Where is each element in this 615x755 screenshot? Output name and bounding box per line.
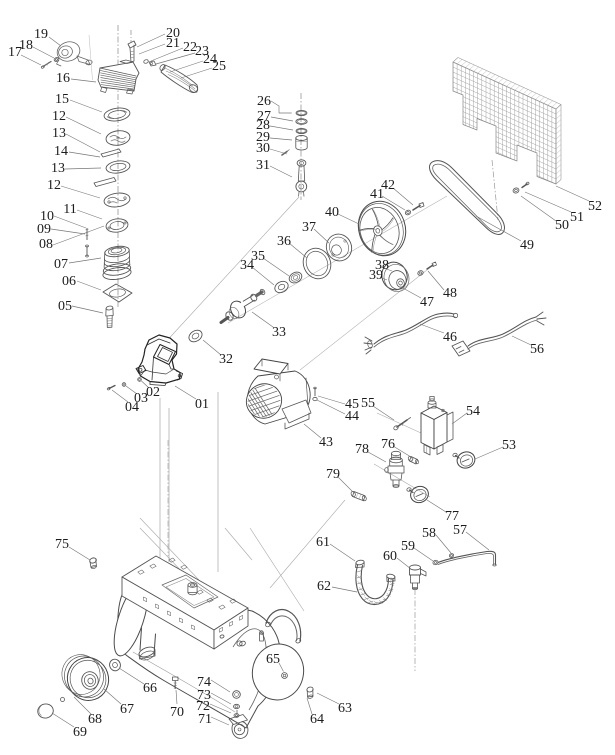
svg-text:78: 78 xyxy=(355,442,369,457)
svg-text:05: 05 xyxy=(58,299,72,314)
svg-text:19: 19 xyxy=(34,27,48,42)
svg-text:67: 67 xyxy=(120,702,134,717)
svg-text:40: 40 xyxy=(325,205,339,220)
svg-text:10: 10 xyxy=(40,209,54,224)
svg-text:13: 13 xyxy=(51,161,65,176)
svg-text:33: 33 xyxy=(272,325,286,340)
svg-text:64: 64 xyxy=(310,712,324,727)
svg-text:25: 25 xyxy=(212,59,226,74)
svg-text:11: 11 xyxy=(63,202,76,217)
svg-text:58: 58 xyxy=(422,526,436,541)
svg-text:55: 55 xyxy=(361,396,375,411)
svg-text:32: 32 xyxy=(219,352,233,367)
svg-text:12: 12 xyxy=(47,178,61,193)
svg-text:43: 43 xyxy=(319,435,333,450)
svg-text:52: 52 xyxy=(588,199,602,214)
svg-text:15: 15 xyxy=(55,92,69,107)
svg-text:14: 14 xyxy=(54,144,68,159)
svg-text:35: 35 xyxy=(251,249,265,264)
svg-text:02: 02 xyxy=(146,385,160,400)
svg-text:56: 56 xyxy=(530,342,544,357)
svg-text:54: 54 xyxy=(466,404,480,419)
svg-text:71: 71 xyxy=(198,712,212,727)
svg-text:69: 69 xyxy=(73,725,87,740)
svg-text:73: 73 xyxy=(197,688,211,703)
svg-text:13: 13 xyxy=(52,126,66,141)
svg-text:26: 26 xyxy=(257,94,271,109)
svg-text:57: 57 xyxy=(453,523,467,538)
svg-text:60: 60 xyxy=(383,549,397,564)
svg-text:18: 18 xyxy=(19,38,33,53)
svg-text:49: 49 xyxy=(520,238,534,253)
svg-text:62: 62 xyxy=(317,579,331,594)
svg-text:53: 53 xyxy=(502,438,516,453)
svg-text:48: 48 xyxy=(443,286,457,301)
svg-text:45: 45 xyxy=(345,397,359,412)
svg-text:16: 16 xyxy=(56,71,70,86)
svg-text:63: 63 xyxy=(338,701,352,716)
svg-text:04: 04 xyxy=(125,400,139,415)
svg-text:65: 65 xyxy=(266,652,280,667)
svg-text:37: 37 xyxy=(302,220,316,235)
svg-text:06: 06 xyxy=(62,274,76,289)
svg-text:68: 68 xyxy=(88,712,102,727)
svg-text:31: 31 xyxy=(256,158,270,173)
svg-text:08: 08 xyxy=(39,237,53,252)
svg-text:70: 70 xyxy=(170,705,184,720)
svg-text:12: 12 xyxy=(52,109,66,124)
svg-text:61: 61 xyxy=(316,535,330,550)
svg-text:50: 50 xyxy=(555,218,569,233)
svg-text:46: 46 xyxy=(443,330,457,345)
svg-text:66: 66 xyxy=(143,681,157,696)
svg-text:77: 77 xyxy=(445,509,459,524)
svg-text:21: 21 xyxy=(166,36,180,51)
svg-text:36: 36 xyxy=(277,234,291,249)
svg-text:79: 79 xyxy=(326,467,340,482)
svg-text:75: 75 xyxy=(55,537,69,552)
svg-text:09: 09 xyxy=(37,222,51,237)
svg-text:42: 42 xyxy=(381,178,395,193)
svg-text:59: 59 xyxy=(401,539,415,554)
svg-text:39: 39 xyxy=(369,268,383,283)
svg-text:74: 74 xyxy=(197,675,211,690)
svg-text:51: 51 xyxy=(570,210,584,225)
svg-text:07: 07 xyxy=(54,257,68,272)
svg-text:30: 30 xyxy=(256,141,270,156)
svg-text:76: 76 xyxy=(381,437,395,452)
svg-text:01: 01 xyxy=(195,397,209,412)
svg-text:47: 47 xyxy=(420,295,434,310)
